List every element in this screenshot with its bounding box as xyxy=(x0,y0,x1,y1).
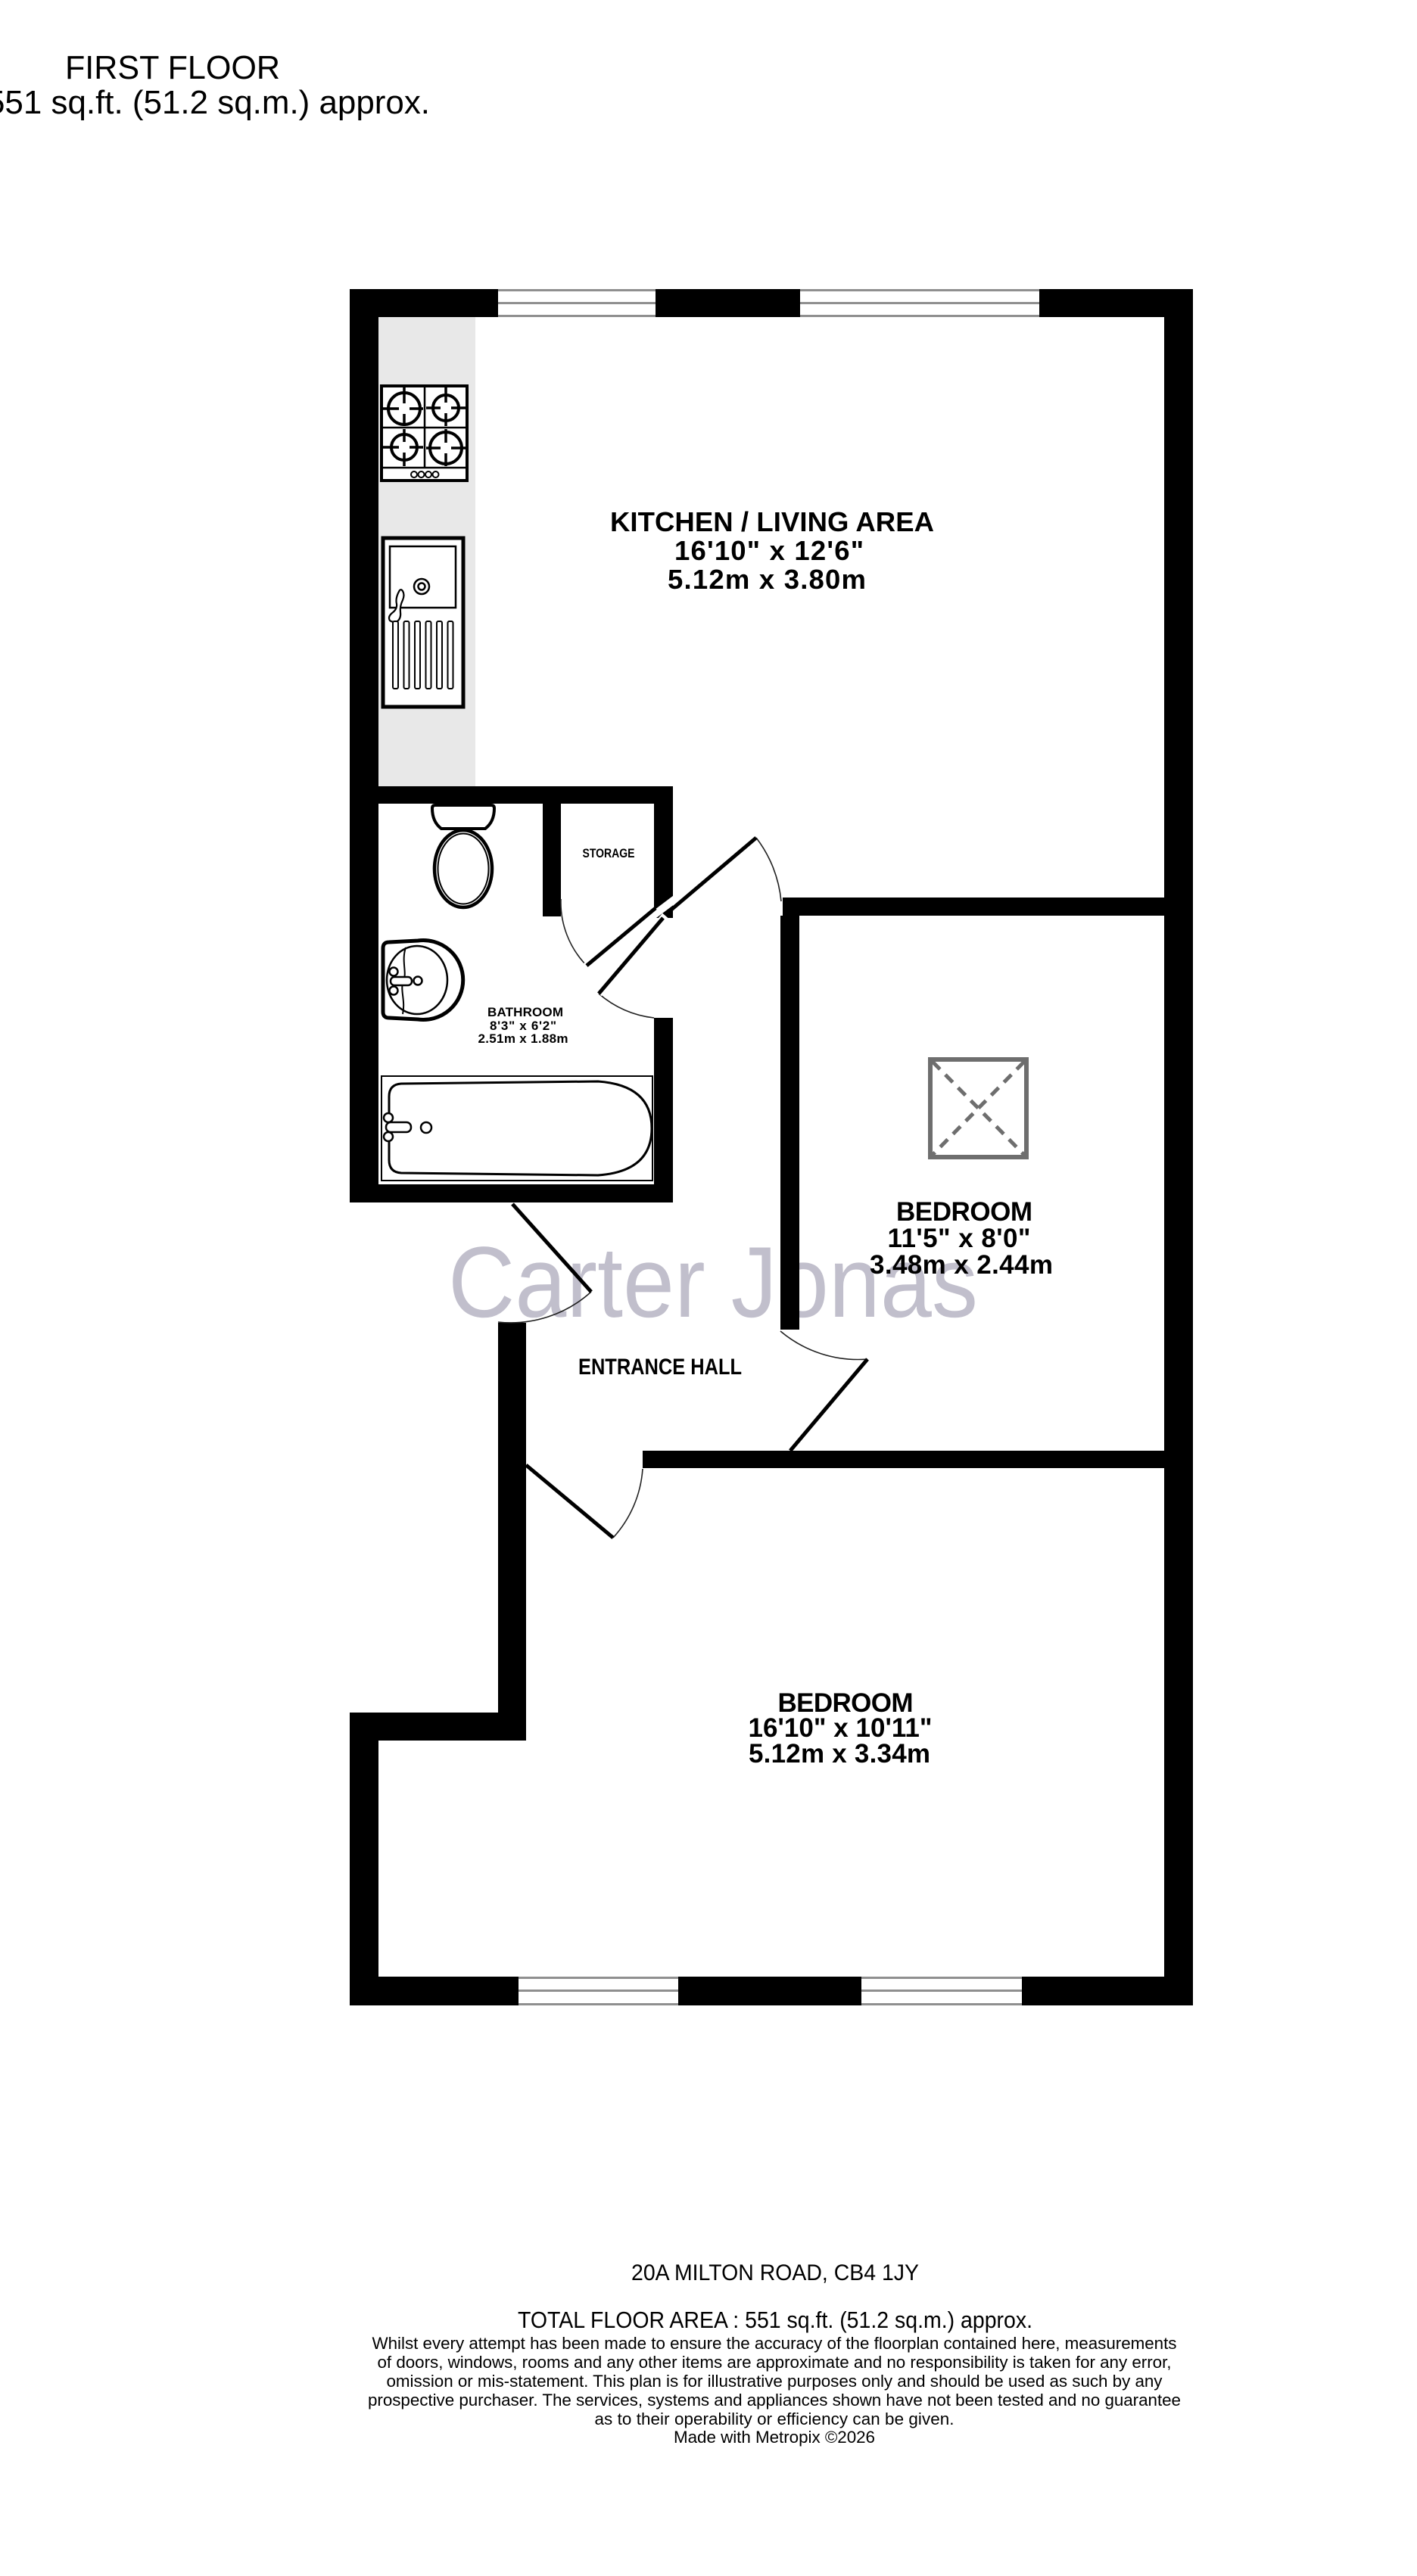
svg-text:STORAGE: STORAGE xyxy=(583,846,635,860)
svg-text:11'5" x 8'0": 11'5" x 8'0" xyxy=(888,1224,1031,1253)
svg-text:3.48m x 2.44m: 3.48m x 2.44m xyxy=(870,1250,1053,1280)
svg-text:prospective purchaser. The ser: prospective purchaser. The services, sys… xyxy=(368,2391,1181,2410)
svg-text:BATHROOM: BATHROOM xyxy=(487,1005,563,1019)
svg-text:Made with Metropix ©2026: Made with Metropix ©2026 xyxy=(674,2428,875,2447)
svg-text:5.12m x 3.34m: 5.12m x 3.34m xyxy=(749,1739,930,1769)
svg-text:5.12m x 3.80m: 5.12m x 3.80m xyxy=(668,564,866,595)
svg-text:KITCHEN / LIVING AREA: KITCHEN / LIVING AREA xyxy=(610,506,934,537)
svg-text:2.51m x 1.88m: 2.51m x 1.88m xyxy=(478,1031,568,1046)
svg-text:TOTAL FLOOR AREA : 551 sq.ft.: TOTAL FLOOR AREA : 551 sq.ft. (51.2 sq.m… xyxy=(518,2307,1032,2333)
svg-text:FIRST FLOOR: FIRST FLOOR xyxy=(65,49,280,86)
svg-text:20A MILTON ROAD, CB4 1JY: 20A MILTON ROAD, CB4 1JY xyxy=(631,2260,919,2285)
svg-text:551 sq.ft. (51.2 sq.m.) approx: 551 sq.ft. (51.2 sq.m.) approx. xyxy=(0,84,430,121)
svg-text:of doors, windows, rooms and a: of doors, windows, rooms and any other i… xyxy=(378,2353,1172,2372)
svg-text:BEDROOM: BEDROOM xyxy=(896,1197,1032,1227)
svg-text:16'10" x 12'6": 16'10" x 12'6" xyxy=(674,535,864,566)
svg-text:omission or mis-statement. Thi: omission or mis-statement. This plan is … xyxy=(387,2372,1163,2391)
svg-text:as to their operability or eff: as to their operability or efficiency ca… xyxy=(595,2410,955,2428)
svg-text:ENTRANCE HALL: ENTRANCE HALL xyxy=(578,1355,742,1380)
svg-text:Whilst every attempt has been: Whilst every attempt has been made to en… xyxy=(372,2334,1177,2353)
